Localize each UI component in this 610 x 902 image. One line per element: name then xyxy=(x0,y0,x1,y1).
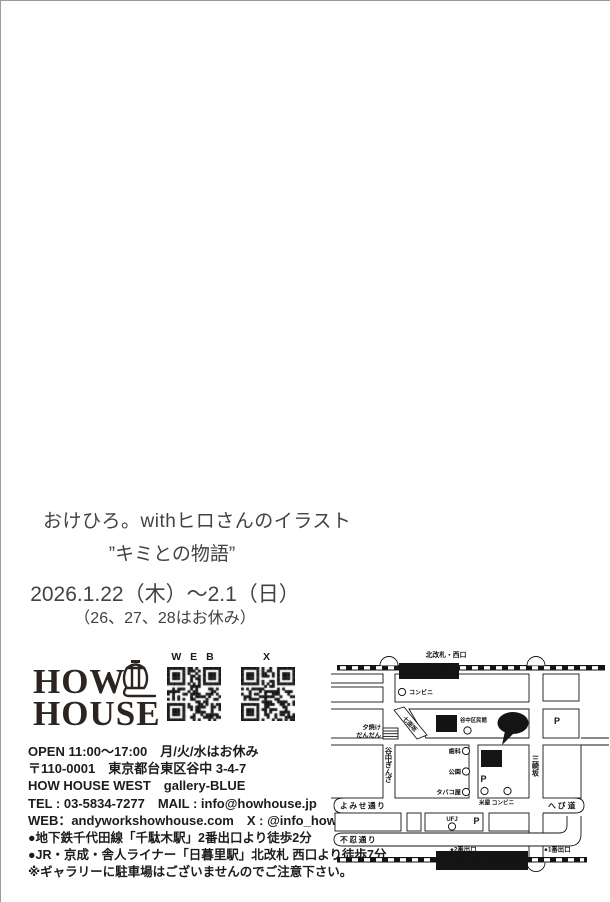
exhibition-title: おけひろ。withヒロさんのイラスト xyxy=(43,506,351,533)
qr-x-label: X xyxy=(241,651,295,663)
map-label-kuminkan: 谷中区民館 xyxy=(460,716,488,724)
map-label-parking-ne: P xyxy=(554,716,560,726)
map-label-hebimichi: へび道 xyxy=(548,801,577,811)
flyer-page: おけひろ。withヒロさんのイラスト ”キミとの物語” 2026.1.22（木）… xyxy=(0,0,610,902)
map-label-here: Here! xyxy=(502,718,524,728)
map-label-north-exit: 北改札・西口 xyxy=(426,650,467,659)
contact-info: OPEN 11:00～17:00 月/火/水はお休み 〒110-0001 東京都… xyxy=(28,743,337,829)
map-label-west: WEST xyxy=(481,757,502,764)
exhibition-closed-days: （26、27、28はお休み） xyxy=(25,604,305,628)
contact-line-address: 〒110-0001 東京都台東区谷中 3-4-7 xyxy=(28,760,337,777)
qr-code-x xyxy=(241,667,295,721)
map-label-exit2: ●2番出口 xyxy=(450,845,477,854)
exhibition-subtitle: ”キミとの物語” xyxy=(43,539,301,566)
lantern-icon xyxy=(116,659,158,703)
map-label-yuyake-1: 夕焼け xyxy=(362,724,381,732)
map-label-tobacco: タバコ屋 xyxy=(436,789,461,797)
stairs-icon xyxy=(383,728,398,739)
map-label-sendagi-station: 千代田線 千駄木駅 xyxy=(446,856,518,867)
map-label-east: EAST xyxy=(437,721,456,728)
map-label-parking-west: P xyxy=(480,774,486,784)
map-label-yuyake-2: だんだん xyxy=(356,733,382,740)
map-label-komeya: 米屋 コンビニ xyxy=(479,799,515,807)
map-label-shinobazu: 不忍通り xyxy=(340,835,377,845)
map-label-conbini-top: コンビニ xyxy=(409,689,433,697)
map-label-parking-ufj: P xyxy=(473,816,479,826)
contact-line-web: WEB：andyworkshowhouse.com X : @info_how xyxy=(28,812,337,829)
map-label-yanaka-ginza: 谷中ぎんざ xyxy=(384,746,393,784)
qr-code-web xyxy=(167,667,221,721)
logo-house: HOUSE xyxy=(33,699,161,729)
map-label-ufj: UFJ xyxy=(446,817,457,823)
contact-line-open: OPEN 11:00～17:00 月/火/水はお休み xyxy=(28,743,337,760)
map-railway-top xyxy=(337,657,605,671)
qr-web-label: W E B xyxy=(167,651,221,663)
here-bubble xyxy=(498,712,529,745)
map-label-yomise-dori: よみせ通り xyxy=(340,801,386,811)
map-label-misakizaka: 三崎坂 xyxy=(531,755,540,778)
map-label-dental: 歯科 xyxy=(449,748,462,756)
map-label-nippori-station: JR 日暮里駅 xyxy=(406,667,452,677)
map-label-park: 公園 xyxy=(449,768,461,776)
logo-how: HOW xyxy=(33,667,125,697)
access-map: 北改札・西口 JR 日暮里駅 コンビニ 夕焼け だんだん 七面坂 EAST 谷中… xyxy=(331,641,610,891)
map-label-exit1: ●1番出口 xyxy=(544,845,571,854)
contact-line-tel: TEL : 03-5834-7277 MAIL : info@howhouse.… xyxy=(28,795,337,812)
contact-line-gallery: HOW HOUSE WEST gallery-BLUE xyxy=(28,777,337,794)
